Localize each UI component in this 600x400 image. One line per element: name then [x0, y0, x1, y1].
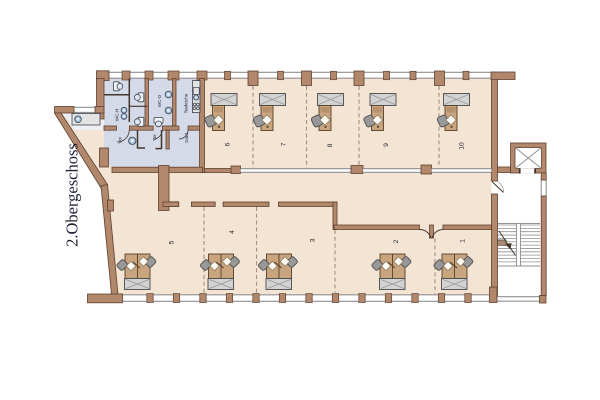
- svg-text:WC-H: WC-H: [115, 109, 120, 122]
- svg-text:WC-D: WC-D: [157, 94, 162, 107]
- svg-text:2: 2: [393, 239, 400, 243]
- svg-text:2.Obergeschoss: 2.Obergeschoss: [63, 143, 82, 247]
- svg-text:Gard: Gard: [184, 133, 189, 143]
- svg-text:Vor: Vor: [152, 134, 157, 141]
- svg-text:8: 8: [327, 143, 334, 147]
- svg-text:9: 9: [383, 143, 390, 147]
- svg-text:5: 5: [169, 240, 176, 244]
- svg-text:6: 6: [225, 142, 232, 146]
- svg-text:1: 1: [460, 239, 467, 243]
- svg-text:7: 7: [281, 142, 288, 146]
- svg-text:10: 10: [459, 142, 466, 150]
- svg-text:Teeküche: Teeküche: [184, 93, 189, 113]
- svg-text:Vor: Vor: [117, 136, 122, 143]
- svg-text:3: 3: [310, 238, 317, 242]
- svg-text:4: 4: [229, 230, 236, 234]
